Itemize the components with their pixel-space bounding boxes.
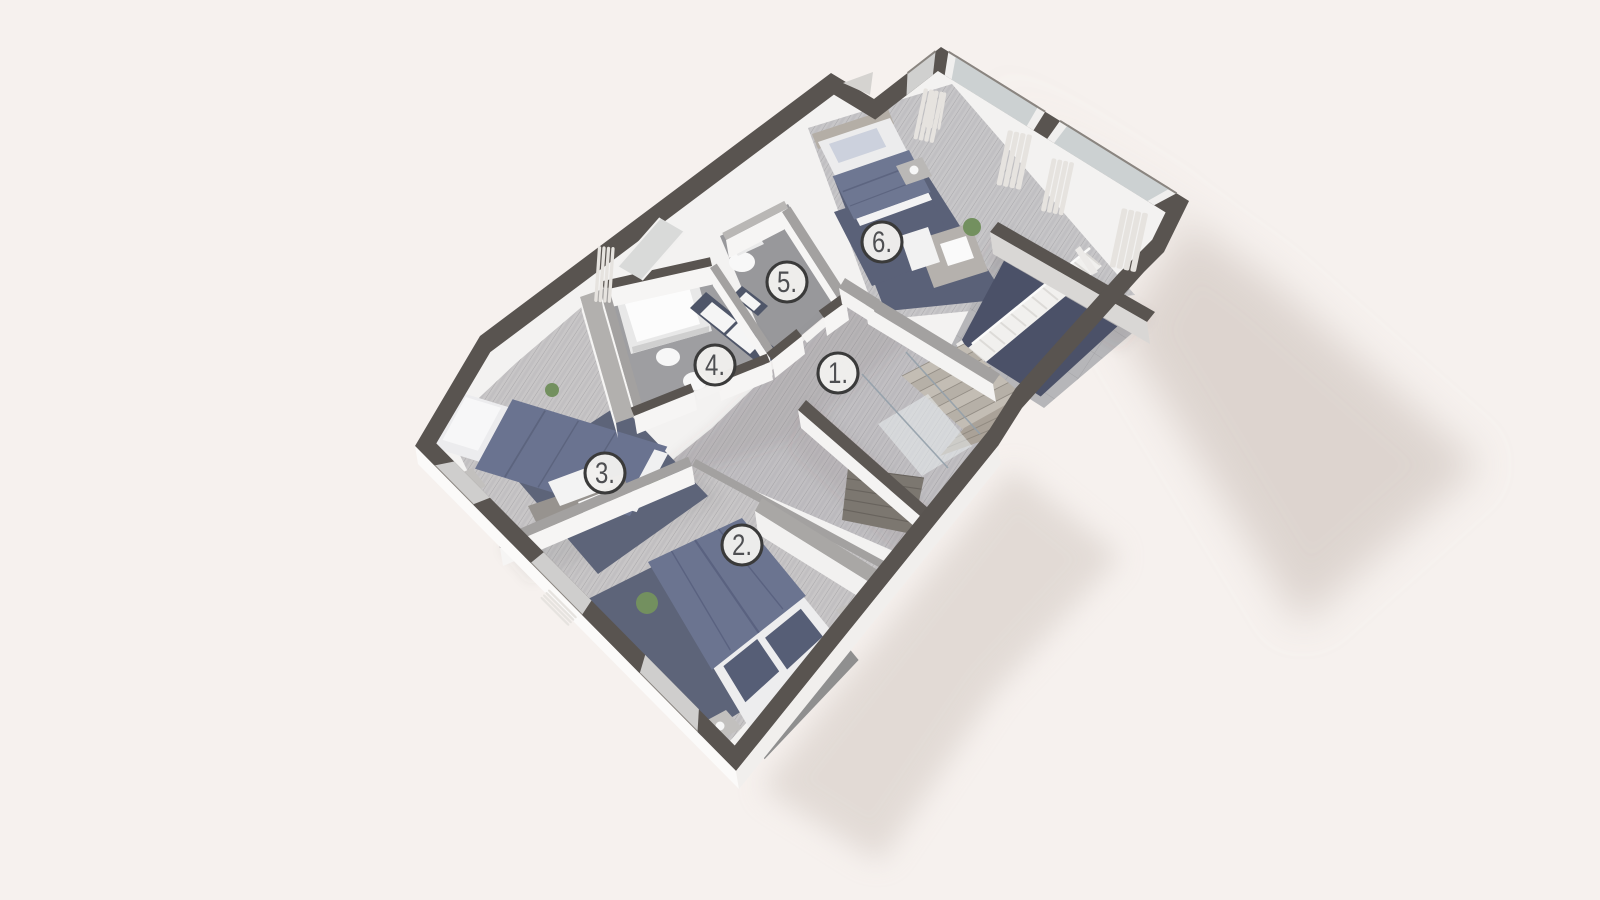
svg-text:2.: 2. <box>732 527 752 561</box>
svg-text:6.: 6. <box>872 224 892 258</box>
svg-text:5.: 5. <box>777 264 797 298</box>
svg-text:4.: 4. <box>705 347 725 381</box>
svg-text:3.: 3. <box>595 455 615 489</box>
svg-text:1.: 1. <box>828 355 848 389</box>
